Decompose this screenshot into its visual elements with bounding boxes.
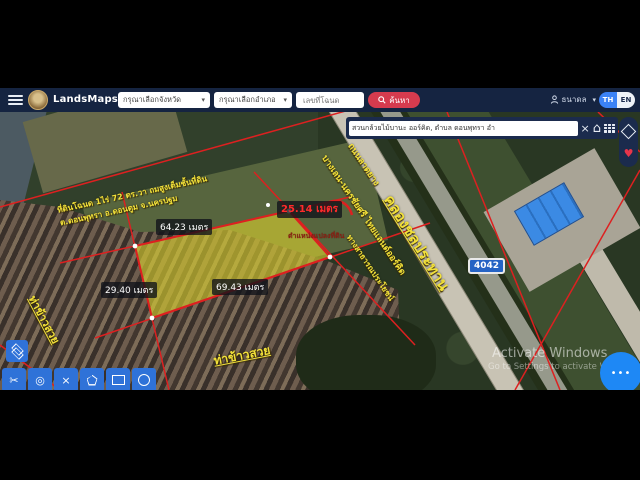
measure-tool-button[interactable]	[6, 340, 28, 362]
chat-fab-button[interactable]: •••	[600, 352, 640, 390]
search-icon	[378, 96, 386, 104]
app-title: LandsMaps	[53, 94, 118, 105]
cut-tool-button[interactable]: ✂	[2, 368, 26, 390]
app-window: LandsMaps กรุณาเลือกจังหวัด ▾ กรุณาเลือก…	[0, 88, 640, 390]
target-icon: ◎	[35, 374, 45, 387]
chevron-down-icon: ▾	[201, 96, 205, 104]
clear-search-icon[interactable]: ×	[581, 123, 590, 134]
grid-view-icon[interactable]	[604, 124, 615, 133]
measurement-bottom: 69.43 เมตร	[212, 279, 268, 295]
draw-rectangle-button[interactable]	[106, 368, 130, 390]
draw-polygon-button[interactable]	[80, 368, 104, 390]
top-navbar: LandsMaps กรุณาเลือกจังหวัด ▾ กรุณาเลือก…	[0, 88, 640, 112]
ellipsis-icon: •••	[611, 368, 632, 379]
delete-tool-button[interactable]: ×	[54, 368, 78, 390]
route-number-badge: 4042	[468, 258, 505, 274]
scissors-icon: ✂	[9, 374, 18, 387]
map-side-controls: ♥	[619, 117, 638, 167]
map-tree-clump	[296, 315, 436, 390]
rectangle-icon	[112, 375, 125, 385]
measurement-top: 64.23 เมตร	[156, 219, 212, 235]
map-search-input[interactable]	[349, 121, 578, 136]
language-toggle[interactable]: TH EN	[599, 92, 635, 108]
screenshot-canvas: LandsMaps กรุณาเลือกจังหวัด ▾ กรุณาเลือก…	[0, 0, 640, 480]
username-label: ธนาดล	[562, 93, 587, 106]
layers-icon[interactable]	[621, 123, 637, 139]
home-icon[interactable]: ⌂	[593, 122, 601, 135]
map-search-bar: × ⌂	[346, 117, 618, 139]
locate-tool-button[interactable]: ◎	[28, 368, 52, 390]
favorite-heart-icon[interactable]: ♥	[624, 148, 634, 159]
person-icon	[550, 95, 559, 104]
draw-toolbar: ✂ ◎ ×	[2, 368, 156, 390]
user-menu[interactable]: ธนาดล ▾	[550, 93, 596, 106]
search-button-label: ค้นหา	[389, 94, 410, 107]
polygon-icon	[87, 375, 98, 386]
lang-en-option[interactable]: EN	[617, 92, 635, 108]
district-select[interactable]: กรุณาเลือกอำเภอ ▾	[214, 92, 292, 108]
circle-icon	[138, 374, 150, 386]
province-select-label: กรุณาเลือกจังหวัด	[123, 94, 181, 106]
close-icon: ×	[61, 374, 70, 387]
deed-number-input[interactable]	[301, 95, 359, 106]
deed-number-field-wrap	[296, 92, 364, 108]
draw-circle-button[interactable]	[132, 368, 156, 390]
measurement-right-top: 25.14 เมตร	[277, 201, 342, 218]
measurement-left: 29.40 เมตร	[101, 282, 157, 298]
satellite-map[interactable]: ที่ดินโฉนด 1ไร่ 72 ตร.วา ถมสูงเต็มชั้นที…	[0, 112, 640, 390]
province-select[interactable]: กรุณาเลือกจังหวัด ▾	[118, 92, 210, 108]
landsmaps-logo	[28, 90, 48, 110]
parcel-position-label: ตำแหน่งแปลงที่ดิน	[288, 231, 344, 242]
stacked-layers-icon	[11, 346, 23, 356]
district-select-label: กรุณาเลือกอำเภอ	[219, 94, 276, 106]
search-button[interactable]: ค้นหา	[368, 92, 420, 108]
lang-th-option[interactable]: TH	[599, 92, 617, 108]
hamburger-menu-icon[interactable]	[8, 95, 23, 105]
activate-windows-watermark: Activate Windows	[492, 346, 607, 361]
chevron-down-icon: ▾	[283, 96, 287, 104]
chevron-down-icon: ▾	[592, 96, 596, 104]
